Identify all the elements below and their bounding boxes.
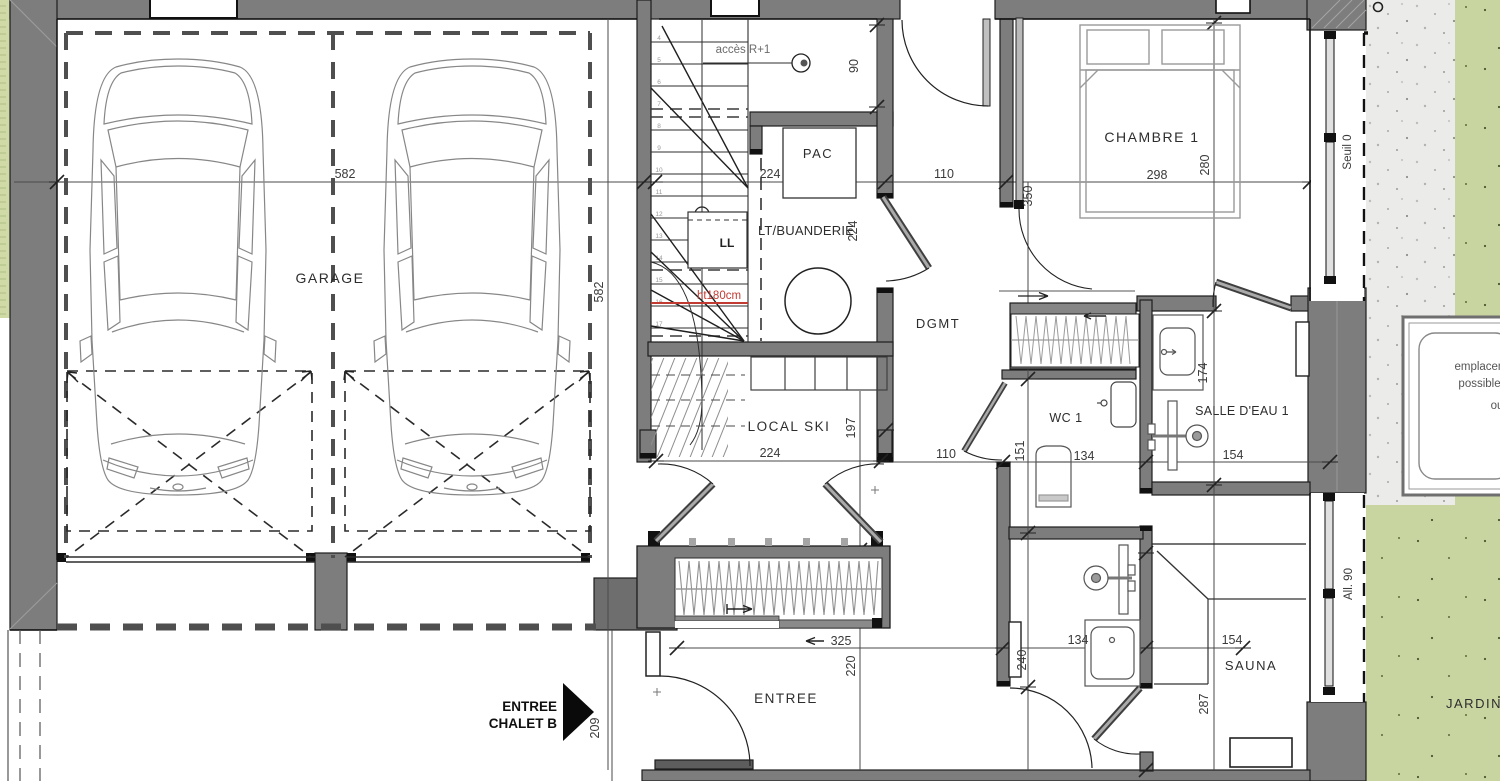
svg-text:ENTREE: ENTREE — [502, 699, 557, 714]
svg-text:ENTREE: ENTREE — [754, 691, 818, 706]
svg-text:ht180cm: ht180cm — [697, 290, 741, 302]
svg-text:174: 174 — [1196, 363, 1210, 384]
svg-text:7: 7 — [657, 101, 661, 108]
svg-text:280: 280 — [1198, 155, 1212, 176]
svg-text:224: 224 — [760, 446, 781, 460]
svg-text:224: 224 — [846, 221, 860, 242]
svg-text:110: 110 — [936, 447, 956, 461]
svg-text:110: 110 — [934, 167, 954, 181]
svg-text:CHALET B: CHALET B — [489, 716, 557, 731]
svg-text:5: 5 — [657, 57, 661, 64]
svg-text:240: 240 — [1015, 650, 1029, 671]
svg-text:WC 1: WC 1 — [1049, 411, 1082, 425]
svg-text:134: 134 — [1074, 449, 1095, 463]
svg-text:12: 12 — [655, 211, 663, 218]
svg-text:LL: LL — [720, 236, 735, 250]
svg-text:SAUNA: SAUNA — [1225, 658, 1277, 673]
svg-text:151: 151 — [1013, 441, 1027, 462]
svg-text:ou: ou — [1491, 400, 1500, 412]
svg-text:325: 325 — [831, 634, 852, 648]
svg-text:11: 11 — [656, 189, 663, 196]
svg-text:90: 90 — [847, 59, 861, 73]
svg-text:154: 154 — [1223, 448, 1244, 462]
svg-text:224: 224 — [760, 167, 781, 181]
svg-text:14: 14 — [655, 255, 663, 262]
svg-text:220: 220 — [844, 656, 858, 677]
svg-text:SALLE D'EAU 1: SALLE D'EAU 1 — [1195, 404, 1289, 418]
svg-text:9: 9 — [657, 145, 661, 152]
svg-text:DGMT: DGMT — [916, 316, 960, 331]
svg-text:4: 4 — [657, 35, 661, 42]
svg-text:PAC: PAC — [803, 146, 833, 161]
svg-text:8: 8 — [657, 123, 661, 130]
svg-text:Seuil 0: Seuil 0 — [1342, 134, 1354, 169]
svg-text:accès R+1: accès R+1 — [716, 44, 771, 56]
svg-text:582: 582 — [592, 282, 606, 303]
svg-text:13: 13 — [655, 233, 663, 240]
svg-text:CHAMBRE 1: CHAMBRE 1 — [1104, 129, 1199, 145]
svg-text:209: 209 — [588, 718, 602, 739]
svg-text:LOCAL SKI: LOCAL SKI — [748, 419, 831, 434]
svg-text:154: 154 — [1222, 633, 1243, 647]
svg-text:possible bain: possible bain — [1458, 378, 1500, 390]
svg-text:350: 350 — [1021, 186, 1035, 207]
svg-text:298: 298 — [1147, 168, 1168, 182]
svg-text:LT/BUANDERIE: LT/BUANDERIE — [758, 223, 854, 238]
svg-text:6: 6 — [657, 79, 661, 86]
svg-text:134: 134 — [1068, 633, 1089, 647]
svg-text:197: 197 — [844, 418, 858, 439]
svg-text:287: 287 — [1197, 694, 1211, 715]
svg-text:10: 10 — [655, 167, 663, 174]
svg-text:582: 582 — [335, 167, 356, 181]
svg-text:emplacement: emplacement — [1454, 361, 1500, 373]
svg-text:15: 15 — [655, 277, 663, 284]
svg-text:JARDIN: JARDIN — [1446, 696, 1500, 711]
svg-text:All. 90: All. 90 — [1343, 568, 1355, 600]
svg-text:GARAGE: GARAGE — [296, 270, 365, 286]
